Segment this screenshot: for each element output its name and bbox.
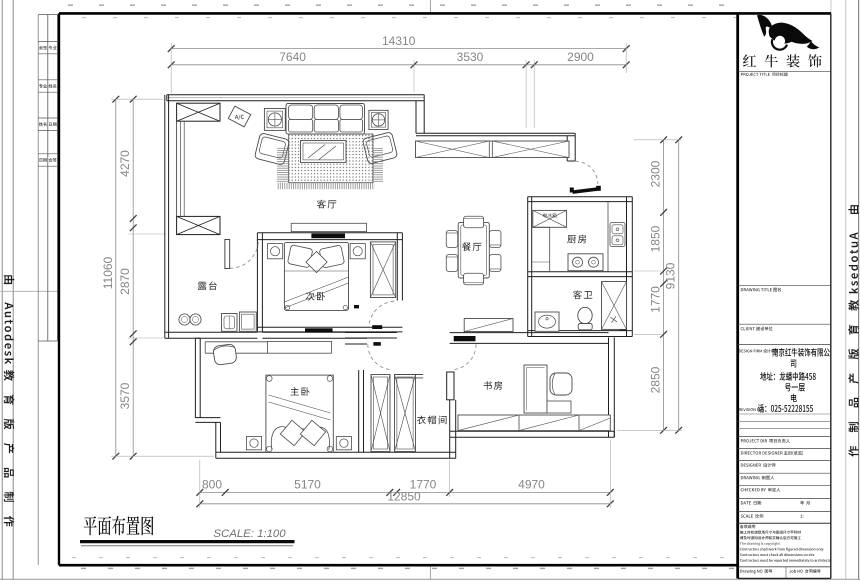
svg-text:5170: 5170 bbox=[294, 478, 321, 492]
svg-text:12850: 12850 bbox=[387, 490, 421, 504]
svg-text:2870: 2870 bbox=[118, 268, 132, 295]
svg-text:3570: 3570 bbox=[118, 382, 132, 409]
svg-text:9130: 9130 bbox=[663, 262, 677, 289]
svg-text:11060: 11060 bbox=[101, 256, 115, 289]
svg-text:2900: 2900 bbox=[567, 50, 594, 64]
svg-text:800: 800 bbox=[202, 478, 222, 492]
svg-text:2850: 2850 bbox=[648, 366, 662, 393]
svg-text:2300: 2300 bbox=[648, 160, 662, 187]
svg-text:1770: 1770 bbox=[648, 286, 662, 313]
svg-text:SCALE: 1:100: SCALE: 1:100 bbox=[213, 528, 286, 540]
svg-text:4270: 4270 bbox=[118, 150, 132, 177]
svg-text:1850: 1850 bbox=[648, 225, 662, 252]
svg-text:3530: 3530 bbox=[457, 50, 484, 64]
svg-text:7640: 7640 bbox=[279, 50, 306, 64]
svg-text:14310: 14310 bbox=[382, 34, 416, 48]
svg-text:4970: 4970 bbox=[518, 478, 545, 492]
